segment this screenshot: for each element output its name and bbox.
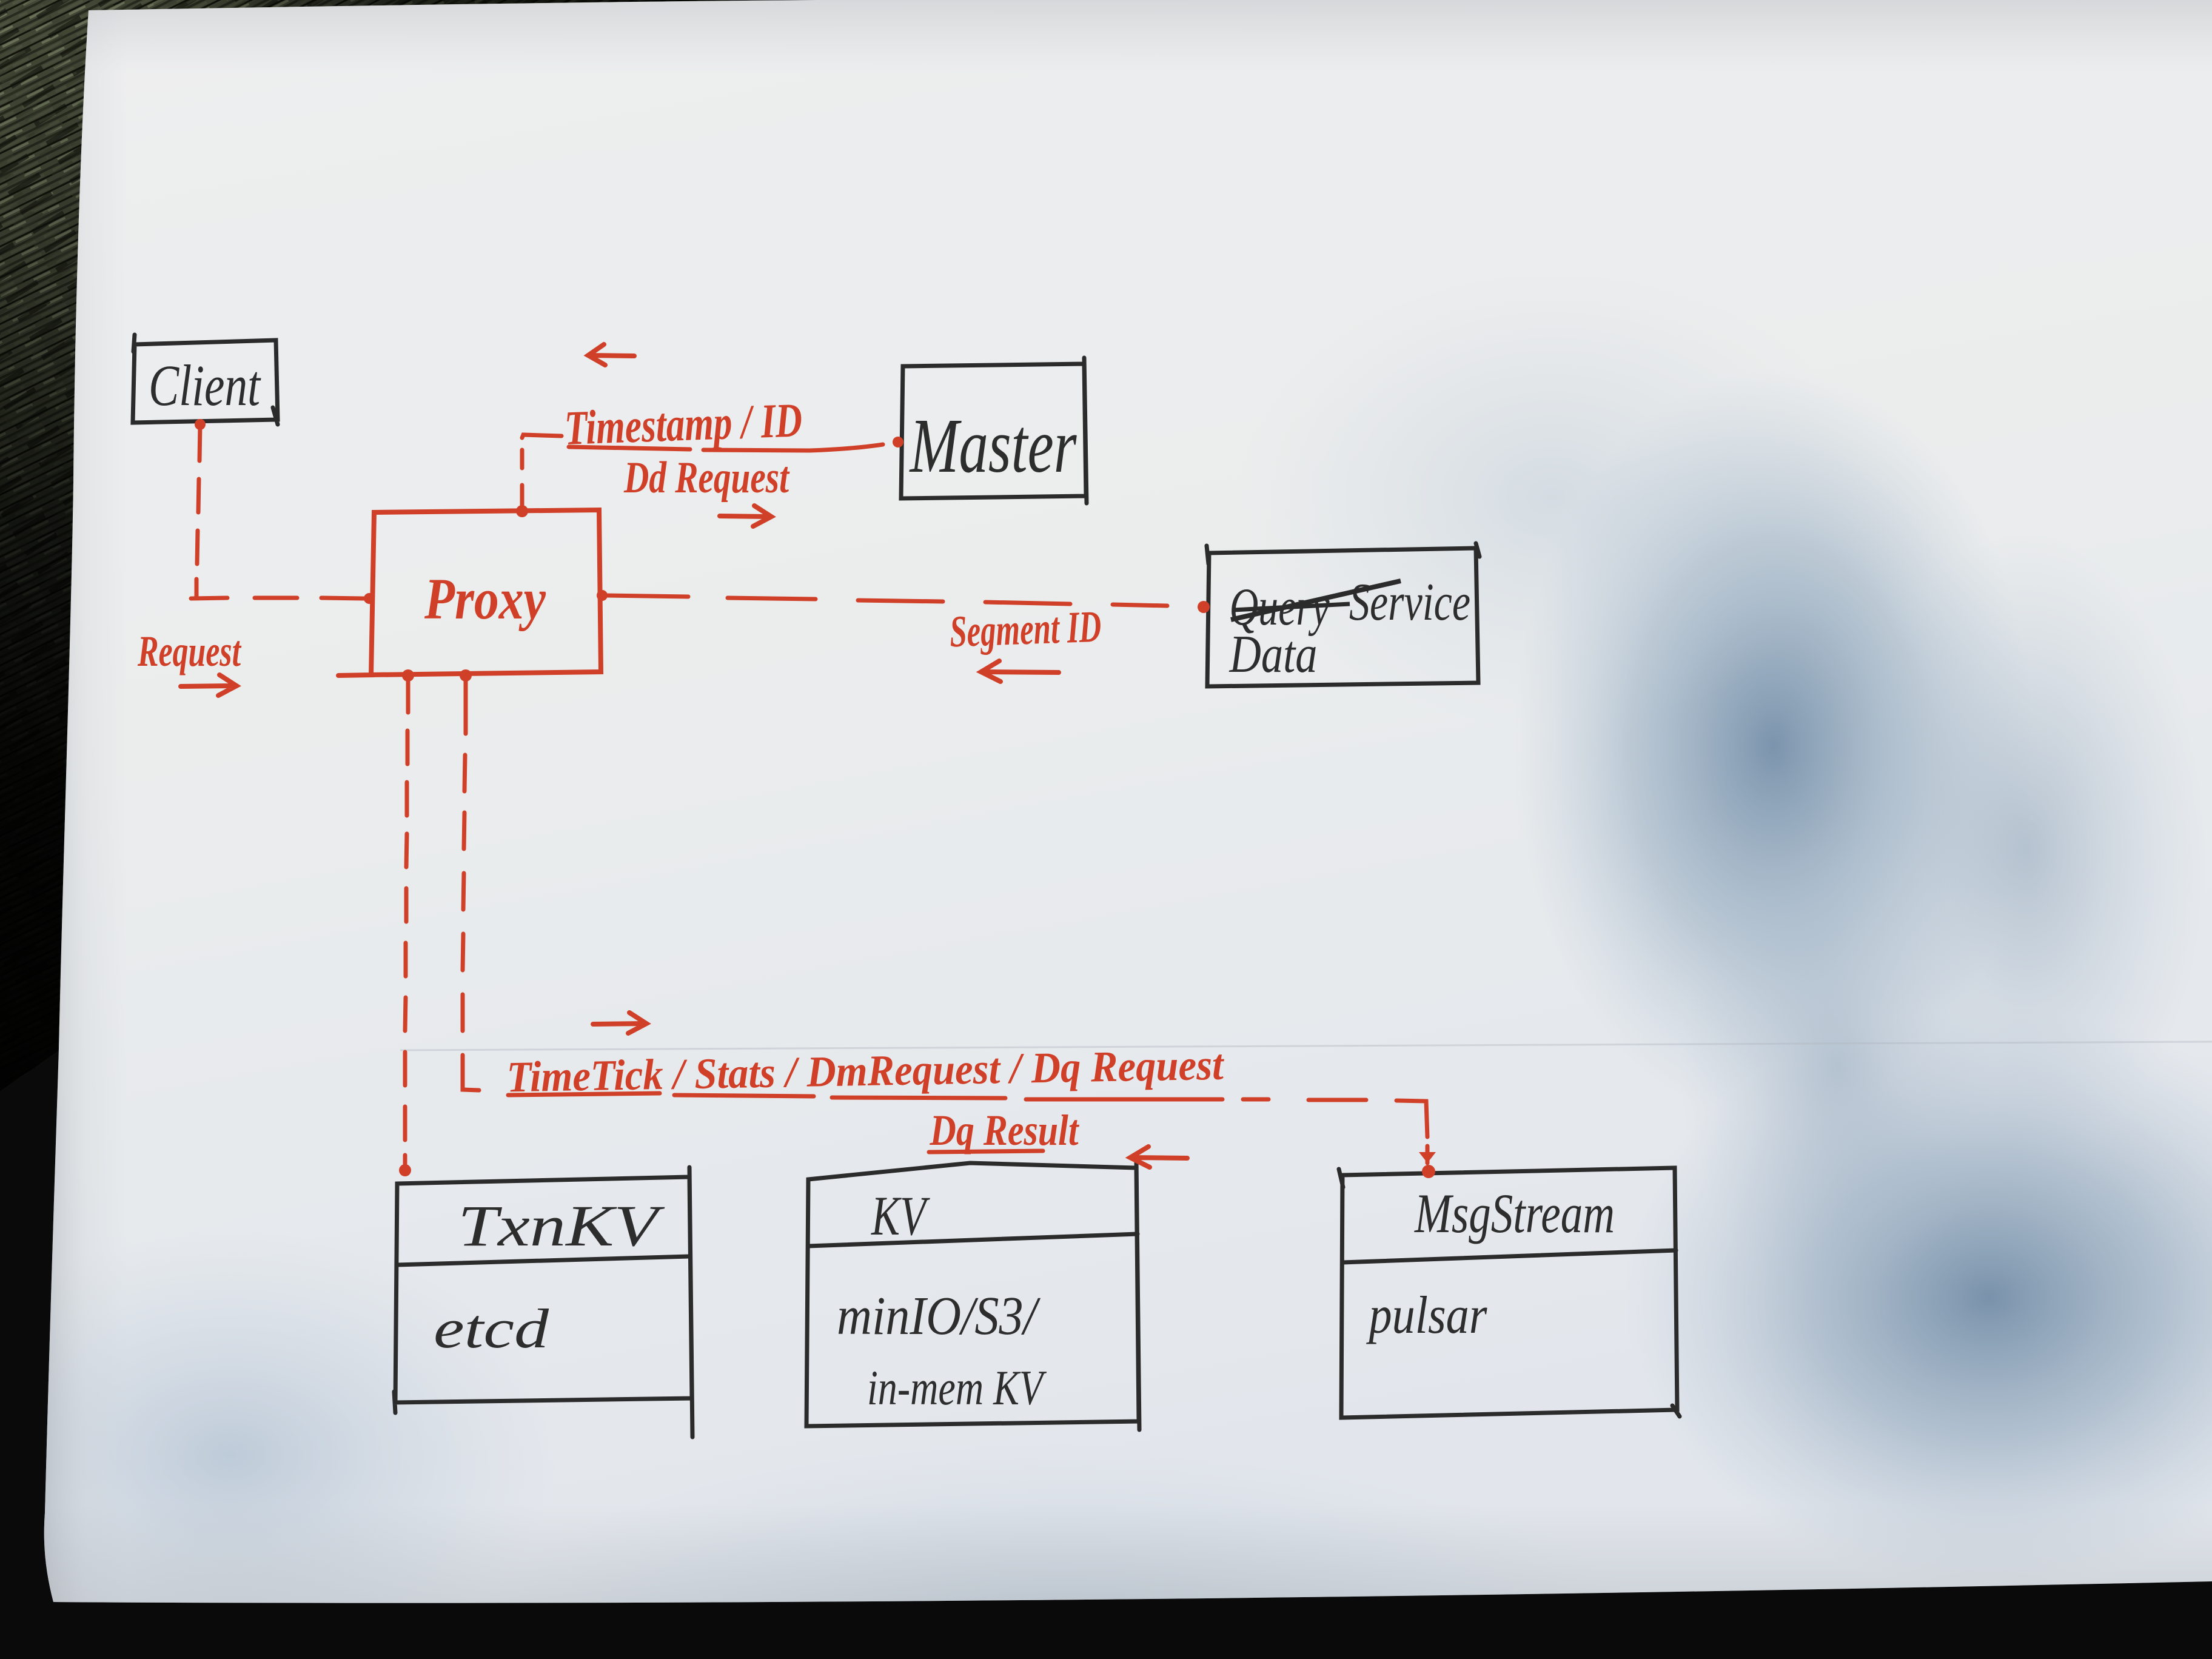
svg-text:Service: Service <box>1349 573 1470 632</box>
svg-text:Proxy: Proxy <box>424 566 546 631</box>
svg-text:Data: Data <box>1229 625 1318 684</box>
svg-text:in-mem KV: in-mem KV <box>867 1360 1047 1415</box>
svg-text:Client: Client <box>149 353 261 418</box>
svg-text:MsgStream: MsgStream <box>1413 1182 1615 1244</box>
svg-text:Dd Request: Dd Request <box>623 453 790 503</box>
svg-text:Dq Result: Dq Result <box>930 1106 1079 1155</box>
svg-text:etcd: etcd <box>434 1298 549 1359</box>
svg-text:pulsar: pulsar <box>1366 1286 1487 1345</box>
svg-text:Segment ID: Segment ID <box>949 602 1102 657</box>
svg-text:KV: KV <box>870 1185 930 1247</box>
svg-text:Request: Request <box>137 627 241 675</box>
svg-text:Timestamp / ID: Timestamp / ID <box>564 394 803 455</box>
svg-text:Master: Master <box>909 403 1077 489</box>
svg-text:TxnKV: TxnKV <box>458 1193 665 1258</box>
svg-text:minIO/S3/: minIO/S3/ <box>837 1286 1041 1346</box>
